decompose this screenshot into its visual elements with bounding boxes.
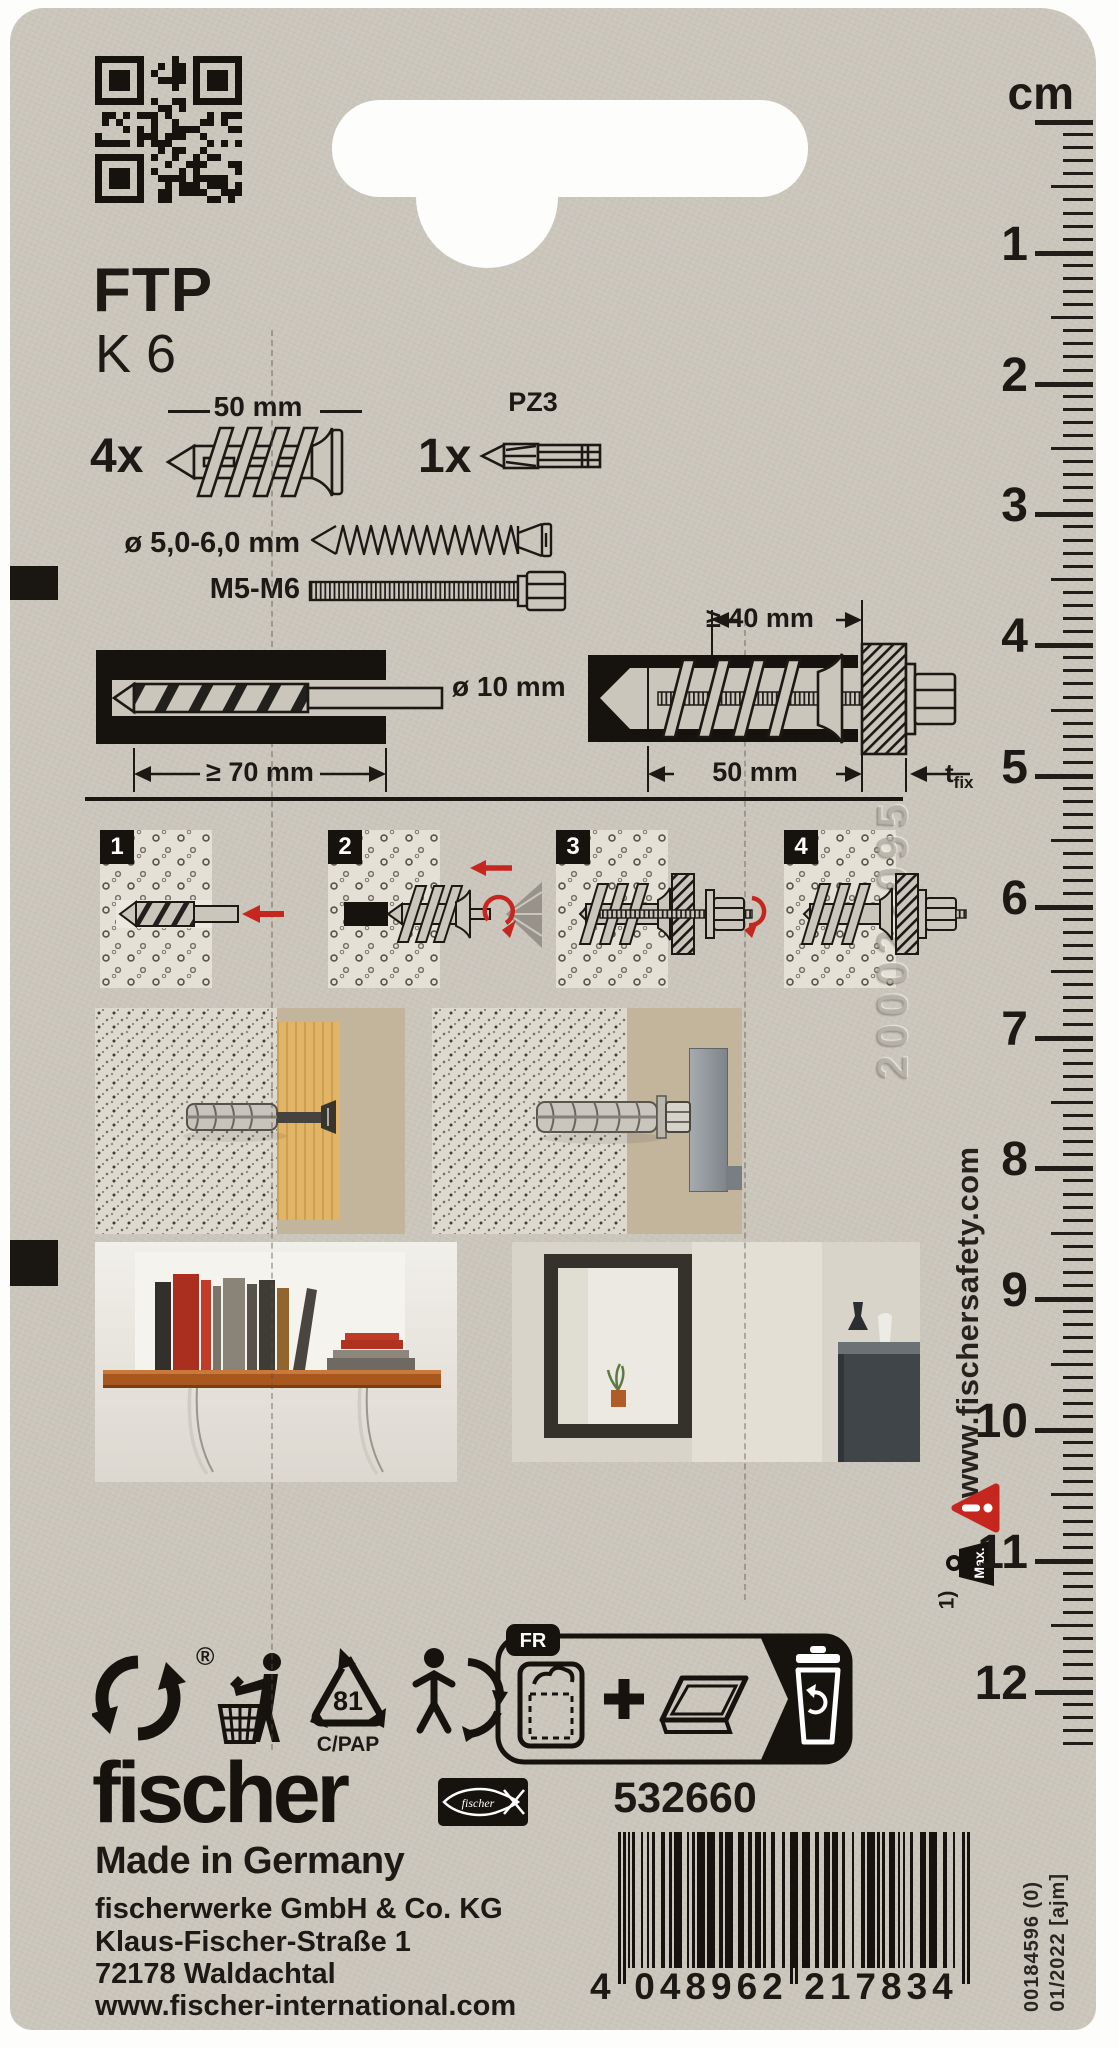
anchor-length-label: 50 mm <box>193 392 323 421</box>
step-number: 2 <box>328 830 362 864</box>
dimension-dash <box>168 410 210 413</box>
fixture-thickness-label: tfix <box>945 760 974 792</box>
fischer-fish-logo: fischer <box>438 1778 528 1826</box>
fr-sorting-info: FR <box>492 1620 884 1772</box>
company-city: 72178 Waldachtal <box>95 1959 336 1989</box>
ruler-unit-label: cm <box>1008 66 1074 120</box>
ean-barcode: 4 048962 217834 <box>618 1832 970 2012</box>
drill-depth-label: ≥ 70 mm <box>190 758 330 786</box>
registered-trademark: ® <box>196 1644 214 1670</box>
application-photo-bracket-fixing <box>432 1008 742 1234</box>
fr-tab-label: FR <box>520 1630 547 1652</box>
min-substrate-label: ≥ 40 mm <box>700 604 820 632</box>
anchor-illustration <box>160 420 360 504</box>
anchor-with-bolt <box>432 1008 742 1234</box>
print-date-code: 01/2022 [ajm] <box>1047 1873 1070 2012</box>
green-dot-icon <box>92 1650 188 1746</box>
install-step-2: 2 <box>328 824 544 996</box>
application-photo-bookshelf <box>95 1242 457 1482</box>
print-registration-mark <box>10 1240 58 1286</box>
drill-diameter-label: ø 10 mm <box>452 672 566 701</box>
brand-logo-text: fischer <box>92 1748 346 1838</box>
bit-illustration <box>478 432 608 480</box>
article-number: 532660 <box>600 1776 770 1821</box>
dimension-dash <box>320 410 362 413</box>
footnote-reference: 1) <box>935 1591 959 1610</box>
qr-code <box>95 56 242 203</box>
print-reference: 00184596 (0) <box>1021 1881 1044 2012</box>
step-number: 1 <box>100 830 134 864</box>
ean-digit-first: 4 <box>590 1966 616 2008</box>
install-step-4: 4 <box>784 824 1000 996</box>
product-size: K 6 <box>95 326 176 383</box>
anchor-quantity: 4x <box>90 432 143 482</box>
euro-hang-slot <box>332 100 808 197</box>
company-street: Klaus-Fischer-Straße 1 <box>95 1927 411 1957</box>
made-in-label: Made in Germany <box>95 1842 404 1882</box>
bit-quantity: 1x <box>418 432 471 482</box>
ean-digits-left: 048962 <box>632 1966 790 2008</box>
mirror-scene <box>512 1242 920 1462</box>
wood-screw-illustration <box>306 520 566 562</box>
anchor-embed-label: 50 mm <box>700 758 810 786</box>
application-photo-mirror <box>512 1242 920 1462</box>
tidyman-icon <box>214 1648 298 1748</box>
bookshelf-scene <box>95 1242 457 1482</box>
recycling-code-icon: 81 <box>298 1644 398 1736</box>
print-registration-mark <box>10 566 58 600</box>
fish-wordmark: fischer <box>462 1796 495 1810</box>
install-step-3: 3 <box>556 824 772 996</box>
product-model: FTP <box>93 258 213 323</box>
install-step-1: 1 <box>100 824 316 996</box>
metric-screw-illustration <box>306 568 568 614</box>
ean-digits-right: 217834 <box>802 1966 960 2008</box>
package-back: { "product": {"model": "FTP", "size": "K… <box>0 0 1118 2048</box>
resin-code: 81 <box>333 1686 363 1716</box>
screw-diameter-label: ø 5,0-6,0 mm <box>92 528 300 558</box>
company-website: www.fischer-international.com <box>95 1991 516 2021</box>
step-number: 3 <box>556 830 590 864</box>
bit-type-label: PZ3 <box>478 388 588 416</box>
hang-hole <box>416 126 558 268</box>
metric-size-label: M5-M6 <box>92 574 300 604</box>
step-number: 4 <box>784 830 818 864</box>
application-photo-wall-fixing <box>95 1008 405 1234</box>
anchor-with-screw <box>95 1008 405 1234</box>
perforation-line <box>271 330 273 1750</box>
company-name: fischerwerke GmbH & Co. KG <box>95 1894 503 1924</box>
